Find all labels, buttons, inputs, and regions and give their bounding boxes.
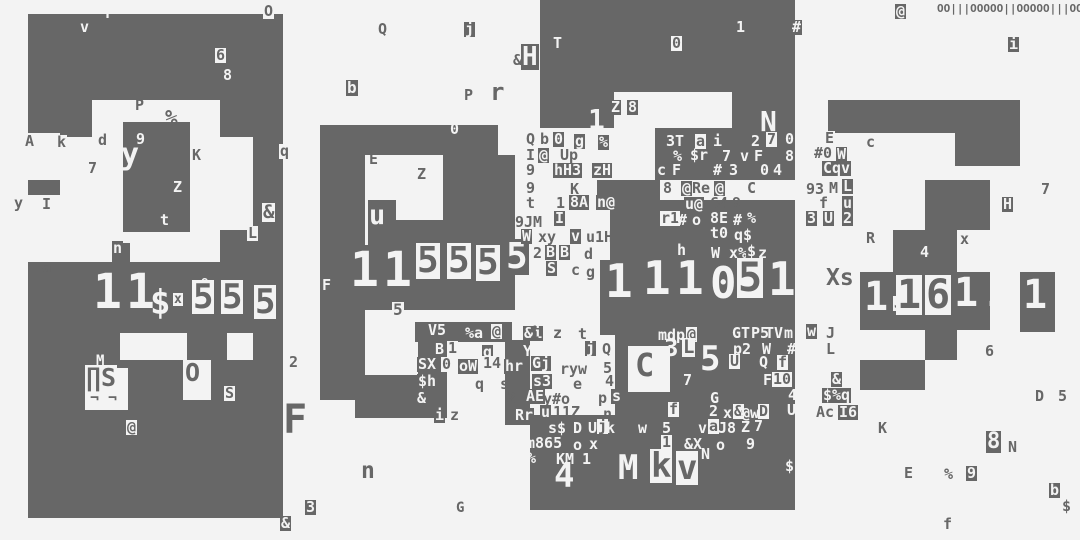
blob-rect	[955, 133, 1020, 166]
glyph: $h	[417, 374, 437, 389]
glyph: $r	[690, 148, 708, 163]
glyph: k	[606, 421, 615, 436]
glyph: b	[1049, 483, 1060, 498]
glyph: S	[546, 261, 557, 276]
glyph: u@	[684, 197, 704, 212]
glyph: x	[960, 232, 969, 247]
glyph: t0	[710, 226, 728, 241]
glyph: z	[553, 326, 562, 341]
glyph: v	[676, 451, 698, 485]
glyph: e	[573, 377, 582, 392]
glyph: 9	[746, 437, 755, 452]
glyph: Z	[610, 100, 621, 115]
glyph: $	[1062, 499, 1071, 514]
glyph: 2	[289, 355, 298, 370]
glyph: o	[573, 438, 582, 453]
glyph: Xs	[826, 267, 854, 290]
blob-rect	[443, 155, 515, 310]
glyph: w	[806, 324, 817, 339]
glyph: 5	[700, 342, 720, 376]
glyph: 8	[627, 100, 638, 115]
glyph: N	[701, 447, 710, 462]
glyph: 0	[760, 163, 769, 178]
glyph: O	[184, 360, 201, 385]
blob-rect	[92, 410, 283, 518]
glyph: Q	[602, 342, 611, 357]
glyph: i	[434, 408, 445, 423]
glyph: %	[747, 211, 756, 226]
glyph: $%q	[822, 388, 851, 403]
glyph: %	[598, 135, 609, 150]
glyph: M	[829, 181, 838, 196]
glyph: 5	[476, 245, 500, 281]
glyph: J8	[718, 421, 736, 436]
glyph: 5	[392, 302, 404, 318]
glyph: 5	[221, 280, 243, 314]
glyph: c	[571, 263, 580, 278]
glyph: n@	[596, 195, 616, 210]
glyph: F	[671, 163, 682, 178]
glyph: GT	[731, 326, 751, 341]
glyph: Q	[378, 22, 387, 37]
glyph: v	[740, 149, 749, 164]
glyph: &	[280, 516, 291, 531]
blob-rect	[828, 100, 1020, 133]
glyph: 5	[254, 285, 276, 319]
glyph: 10	[772, 372, 792, 387]
glyph: oW	[458, 359, 478, 374]
glyph: H	[521, 44, 539, 70]
glyph: R	[866, 231, 875, 246]
glyph: 1	[93, 268, 122, 316]
glyph: x	[173, 293, 183, 306]
glyph: u	[369, 202, 385, 229]
glyph: 9	[526, 163, 535, 178]
glyph: L	[682, 338, 695, 357]
glyph: o	[692, 213, 701, 228]
glyph: %	[944, 467, 953, 482]
glyph: i	[713, 134, 722, 149]
glyph: c	[866, 135, 875, 150]
glyph: i	[1008, 37, 1019, 52]
glyph: F	[322, 278, 331, 293]
glyph: 2	[533, 246, 542, 261]
glyph: K	[192, 148, 201, 163]
glyph: @	[491, 324, 502, 339]
glyph: w	[638, 421, 647, 436]
glyph: F	[283, 400, 307, 440]
glyph: 1	[736, 20, 745, 35]
glyph: o	[716, 438, 725, 453]
glyph: hH3	[553, 163, 582, 178]
glyph: 14	[482, 356, 502, 371]
glyph: 5	[1058, 389, 1067, 404]
glyph: &	[417, 391, 426, 406]
glyph: 7	[1041, 182, 1050, 197]
glyph: 6	[985, 344, 994, 359]
glyph: D	[1035, 389, 1044, 404]
glyph: Z	[741, 420, 750, 435]
glyph: Cqv	[822, 161, 851, 176]
glyph: 3	[728, 163, 739, 178]
glyph: m	[783, 326, 794, 341]
glyph: z	[450, 408, 459, 423]
glyph: @	[681, 181, 692, 196]
glyph: hr	[504, 359, 524, 374]
glyph: 7	[766, 132, 777, 147]
glyph: 3	[305, 500, 316, 515]
glyph: U	[588, 421, 597, 436]
glyph: O	[263, 4, 274, 19]
glyph: E	[369, 152, 378, 167]
glyph: v	[698, 421, 707, 436]
blob-rect	[925, 180, 990, 230]
glyph: u	[540, 405, 551, 420]
glyph: s	[611, 389, 622, 404]
glyph: c	[657, 163, 666, 178]
glyph: @	[126, 420, 137, 435]
glyph: 1	[588, 106, 605, 134]
glyph: 0	[671, 36, 682, 51]
glyph: T	[553, 36, 562, 51]
blob-rect	[28, 180, 60, 195]
glyph: 0	[784, 132, 795, 147]
glyph: t	[526, 196, 535, 211]
glyph: 8	[663, 181, 672, 196]
glyph: Y	[103, 6, 112, 21]
glyph: 8	[986, 431, 1001, 453]
glyph: Z	[173, 180, 182, 195]
glyph: Re	[692, 181, 710, 196]
glyph: u1H	[586, 230, 613, 245]
glyph: $	[150, 286, 170, 320]
glyph: f	[668, 402, 679, 417]
glyph: G	[456, 501, 464, 515]
glyph: S	[224, 386, 235, 401]
glitch-art-canvas: YvO68QjbPr0EZ&HT01#@OO|||OOOOO||OOOOO|||…	[0, 0, 1080, 540]
glyph: k	[56, 135, 67, 150]
glyph: 6	[925, 275, 951, 315]
glyph: 1	[896, 275, 922, 315]
glyph: 9	[732, 196, 741, 211]
glyph: k	[650, 449, 672, 483]
glyph: M	[618, 451, 638, 485]
glyph: %a	[464, 326, 484, 341]
glyph: 4	[773, 163, 782, 178]
glyph: #	[791, 20, 802, 35]
glyph: $	[785, 459, 794, 474]
glyph: 1	[954, 273, 978, 313]
glyph: 1	[582, 452, 591, 467]
glyph: P	[135, 98, 144, 113]
glyph: y	[121, 140, 139, 170]
glyph: 1	[605, 258, 633, 304]
glyph: 2	[507, 391, 516, 406]
glyph: p	[598, 391, 607, 406]
glyph: P	[464, 88, 473, 103]
blob-rect	[320, 125, 498, 155]
glyph: &	[831, 372, 842, 387]
glyph: n	[361, 460, 375, 483]
glyph: b	[346, 80, 358, 96]
glyph: f	[943, 517, 952, 532]
glyph: TV	[765, 326, 783, 341]
glyph: 6	[215, 48, 226, 63]
glyph: q	[279, 144, 290, 159]
glyph: Rr	[514, 408, 534, 423]
glyph: I	[554, 211, 565, 226]
glyph: I	[41, 197, 52, 212]
glyph: ∏S	[85, 365, 117, 390]
glyph: q$	[734, 228, 752, 243]
glyph: %	[527, 451, 536, 466]
glyph: #	[787, 342, 796, 357]
glyph: 1	[768, 256, 796, 302]
glyph: #	[713, 163, 722, 178]
glyph: U	[729, 354, 740, 369]
glyph: j	[464, 22, 475, 37]
glyph: 11Z	[553, 405, 580, 420]
blob-rect	[60, 100, 92, 137]
glyph: U	[787, 403, 796, 418]
glyph: 3	[664, 336, 678, 360]
glyph: d	[584, 247, 593, 262]
glyph: L	[247, 226, 258, 241]
glyph: A	[24, 134, 35, 149]
glyph: 7	[88, 161, 97, 176]
glyph: N	[1008, 440, 1017, 455]
glyph: g	[586, 265, 595, 280]
glyph: d	[98, 133, 107, 148]
glyph: 7	[683, 373, 692, 388]
glyph: Q	[758, 355, 769, 370]
glyph: 4	[920, 245, 929, 260]
glyph: &	[262, 203, 275, 222]
glyph: 5	[737, 258, 763, 298]
glyph: 3	[806, 211, 817, 226]
glyph: L	[842, 179, 853, 194]
glyph: V5	[427, 323, 447, 338]
glyph: 8A	[569, 195, 589, 210]
glyph: 1	[1023, 275, 1047, 315]
glyph: Z	[417, 167, 426, 182]
glyph: j	[585, 341, 596, 356]
glyph: B	[559, 245, 570, 260]
glyph: t	[160, 213, 169, 228]
glyph: 1	[864, 277, 888, 317]
blob-rect	[28, 100, 60, 133]
glyph: 0	[441, 357, 452, 372]
glyph: f	[777, 355, 788, 370]
glyph: Ac	[816, 405, 834, 420]
blob-rect	[860, 360, 925, 390]
glyph: 9	[966, 466, 977, 481]
glyph: ¬ ¬	[90, 391, 117, 406]
glyph: 2	[842, 211, 853, 226]
glyph: a	[42, 260, 51, 275]
glyph: B	[545, 245, 556, 260]
blob-rect	[28, 262, 92, 518]
glyph: 1	[447, 341, 458, 356]
blob-rect	[925, 330, 957, 360]
glyph: b	[540, 132, 549, 147]
cutout-rect	[123, 350, 187, 360]
glyph: 5	[447, 243, 471, 279]
glyph: zH	[592, 163, 612, 178]
glyph: W	[521, 229, 532, 244]
glyph: Gj	[531, 356, 551, 371]
glyph: @	[538, 148, 549, 163]
glyph: n	[112, 241, 123, 256]
blob-rect	[540, 0, 795, 92]
blob-rect	[28, 14, 283, 100]
glyph: L	[826, 342, 835, 357]
blob-rect	[355, 375, 420, 418]
glyph: %	[165, 108, 178, 129]
glyph: U	[823, 211, 834, 226]
glyph: 1	[643, 255, 671, 301]
glyph: OO|||OOOOO||OOOOO|||OO|OO||O|||	[937, 3, 1080, 14]
glyph: 8	[785, 149, 794, 164]
glyph: J	[826, 326, 835, 341]
blob-rect	[187, 322, 227, 360]
glyph: C	[747, 181, 756, 196]
glyph: #	[678, 213, 687, 228]
glyph: v	[80, 20, 89, 35]
glyph: 0	[450, 122, 459, 137]
glyph: H	[1002, 197, 1013, 212]
glyph: SX	[417, 357, 437, 372]
glyph: C	[635, 349, 654, 381]
glyph: y	[14, 196, 23, 211]
glyph: v	[570, 229, 581, 244]
glyph: @	[895, 4, 906, 19]
glyph: 5	[416, 243, 440, 279]
glyph: q	[475, 377, 484, 392]
glyph: 8	[223, 68, 232, 83]
glyph: 0	[710, 262, 737, 306]
glyph: 4	[554, 459, 574, 493]
glyph: 1	[986, 273, 1010, 313]
glyph: 0	[553, 132, 564, 147]
glyph: E	[904, 466, 913, 481]
glyph: D	[573, 421, 582, 436]
glyph: i	[530, 326, 539, 341]
glyph: Q	[526, 132, 535, 147]
glyph: r	[490, 80, 504, 104]
glyph: 5	[192, 280, 214, 314]
glyph: 1	[383, 246, 412, 294]
glyph: 1	[676, 255, 704, 301]
glyph: I6	[838, 405, 858, 420]
glyph: K	[878, 421, 887, 436]
glyph: F	[763, 373, 772, 388]
glyph: 1	[350, 246, 379, 294]
glyph: 7	[753, 419, 764, 434]
